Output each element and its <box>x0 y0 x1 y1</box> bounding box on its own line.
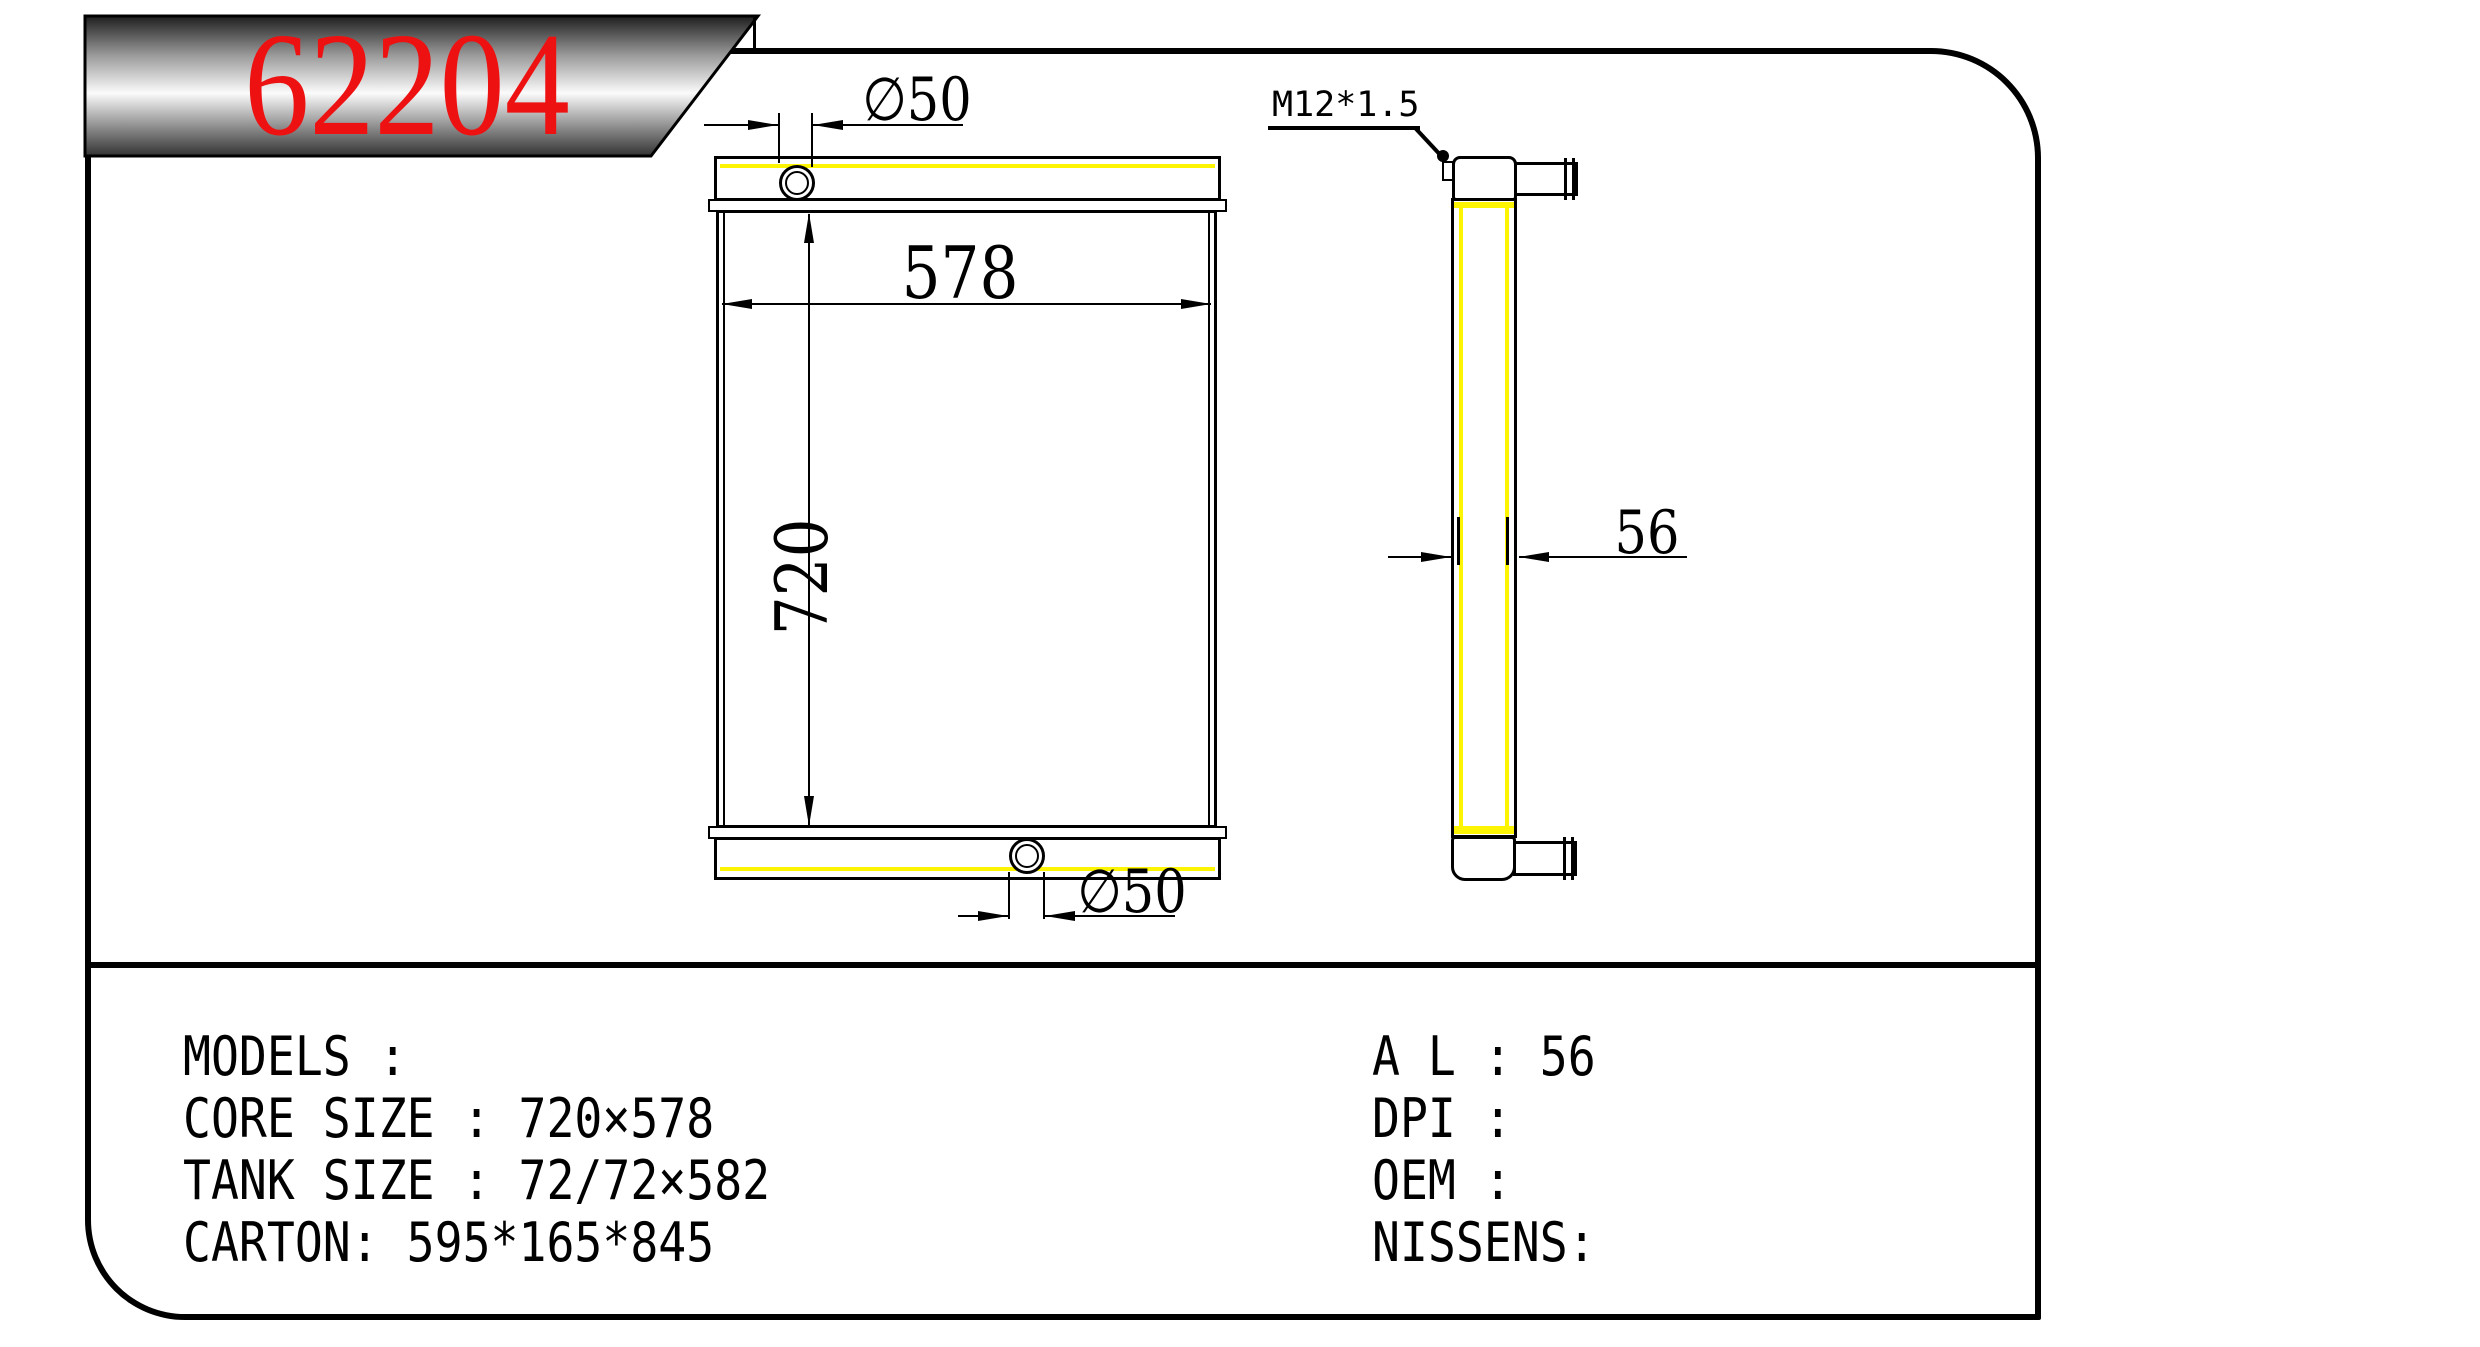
dim-height-label: 720 <box>766 525 832 636</box>
dim-thickness-tick-right <box>1506 517 1509 565</box>
banner-corner-tick <box>753 16 756 54</box>
side-bottom-pipe <box>1513 841 1577 876</box>
dim-bottom-port-arrow-left <box>978 911 1008 921</box>
dim-width-label: 578 <box>892 237 1028 309</box>
thread-callout-leader-dot <box>1437 150 1449 162</box>
dim-top-port-arrow-right <box>813 120 843 130</box>
side-bottom-pipe-ring-1 <box>1563 837 1566 880</box>
dim-height-arrow-bottom <box>804 796 814 826</box>
dim-width-arrow-left <box>722 299 752 309</box>
dim-thickness-tick-left <box>1457 517 1460 565</box>
spec-tank-size-line: TANK SIZE : 72/72×582 <box>183 1154 770 1208</box>
side-top-fitting-nub <box>1442 161 1454 181</box>
dim-top-port-ext-left <box>778 113 780 163</box>
part-number-title: 62204 <box>143 16 671 154</box>
side-top-pipe-ring-1 <box>1564 158 1567 200</box>
dim-top-port-arrow-left <box>748 120 778 130</box>
dim-thickness-label: 56 <box>1583 503 1711 563</box>
thread-callout-underline <box>1268 126 1420 130</box>
spec-carton-line: CARTON: 595*165*845 <box>183 1216 714 1270</box>
dim-width-arrow-right <box>1181 299 1211 309</box>
thread-callout-label: M12*1.5 <box>1272 88 1420 123</box>
spec-dpi-line: DPI : <box>1372 1092 1512 1146</box>
spec-models-line: MODELS : <box>183 1030 407 1084</box>
drawing-sheet: 62204 578 720 ∅50 ∅50 M1 <box>0 0 2480 1347</box>
side-top-tank <box>1452 156 1517 201</box>
side-bottom-tank <box>1451 836 1516 881</box>
side-top-pipe-ring-2 <box>1572 158 1575 200</box>
spec-oem-line: OEM : <box>1372 1154 1512 1208</box>
front-top-port-hole-inner <box>785 171 809 195</box>
side-top-pipe <box>1514 162 1578 196</box>
spec-al-line: A L : 56 <box>1372 1030 1596 1084</box>
front-bottom-port-hole-inner <box>1015 844 1039 868</box>
spec-nissens-line: NISSENS: <box>1372 1216 1596 1270</box>
side-core-gasket-bottom <box>1454 826 1514 834</box>
side-core-gasket-top <box>1454 202 1514 208</box>
spec-core-size-line: CORE SIZE : 720×578 <box>183 1092 714 1146</box>
dim-height-arrow-top <box>804 213 814 243</box>
dim-bottom-port-ext-left <box>1008 872 1010 919</box>
dim-top-port-label: ∅50 <box>858 70 977 130</box>
dim-bottom-port-label: ∅50 <box>1068 862 1196 922</box>
section-divider-line <box>88 962 2038 968</box>
side-bottom-pipe-ring-2 <box>1571 837 1574 880</box>
dim-thickness-arrow-left <box>1421 552 1451 562</box>
dim-thickness-arrow-right <box>1519 552 1549 562</box>
